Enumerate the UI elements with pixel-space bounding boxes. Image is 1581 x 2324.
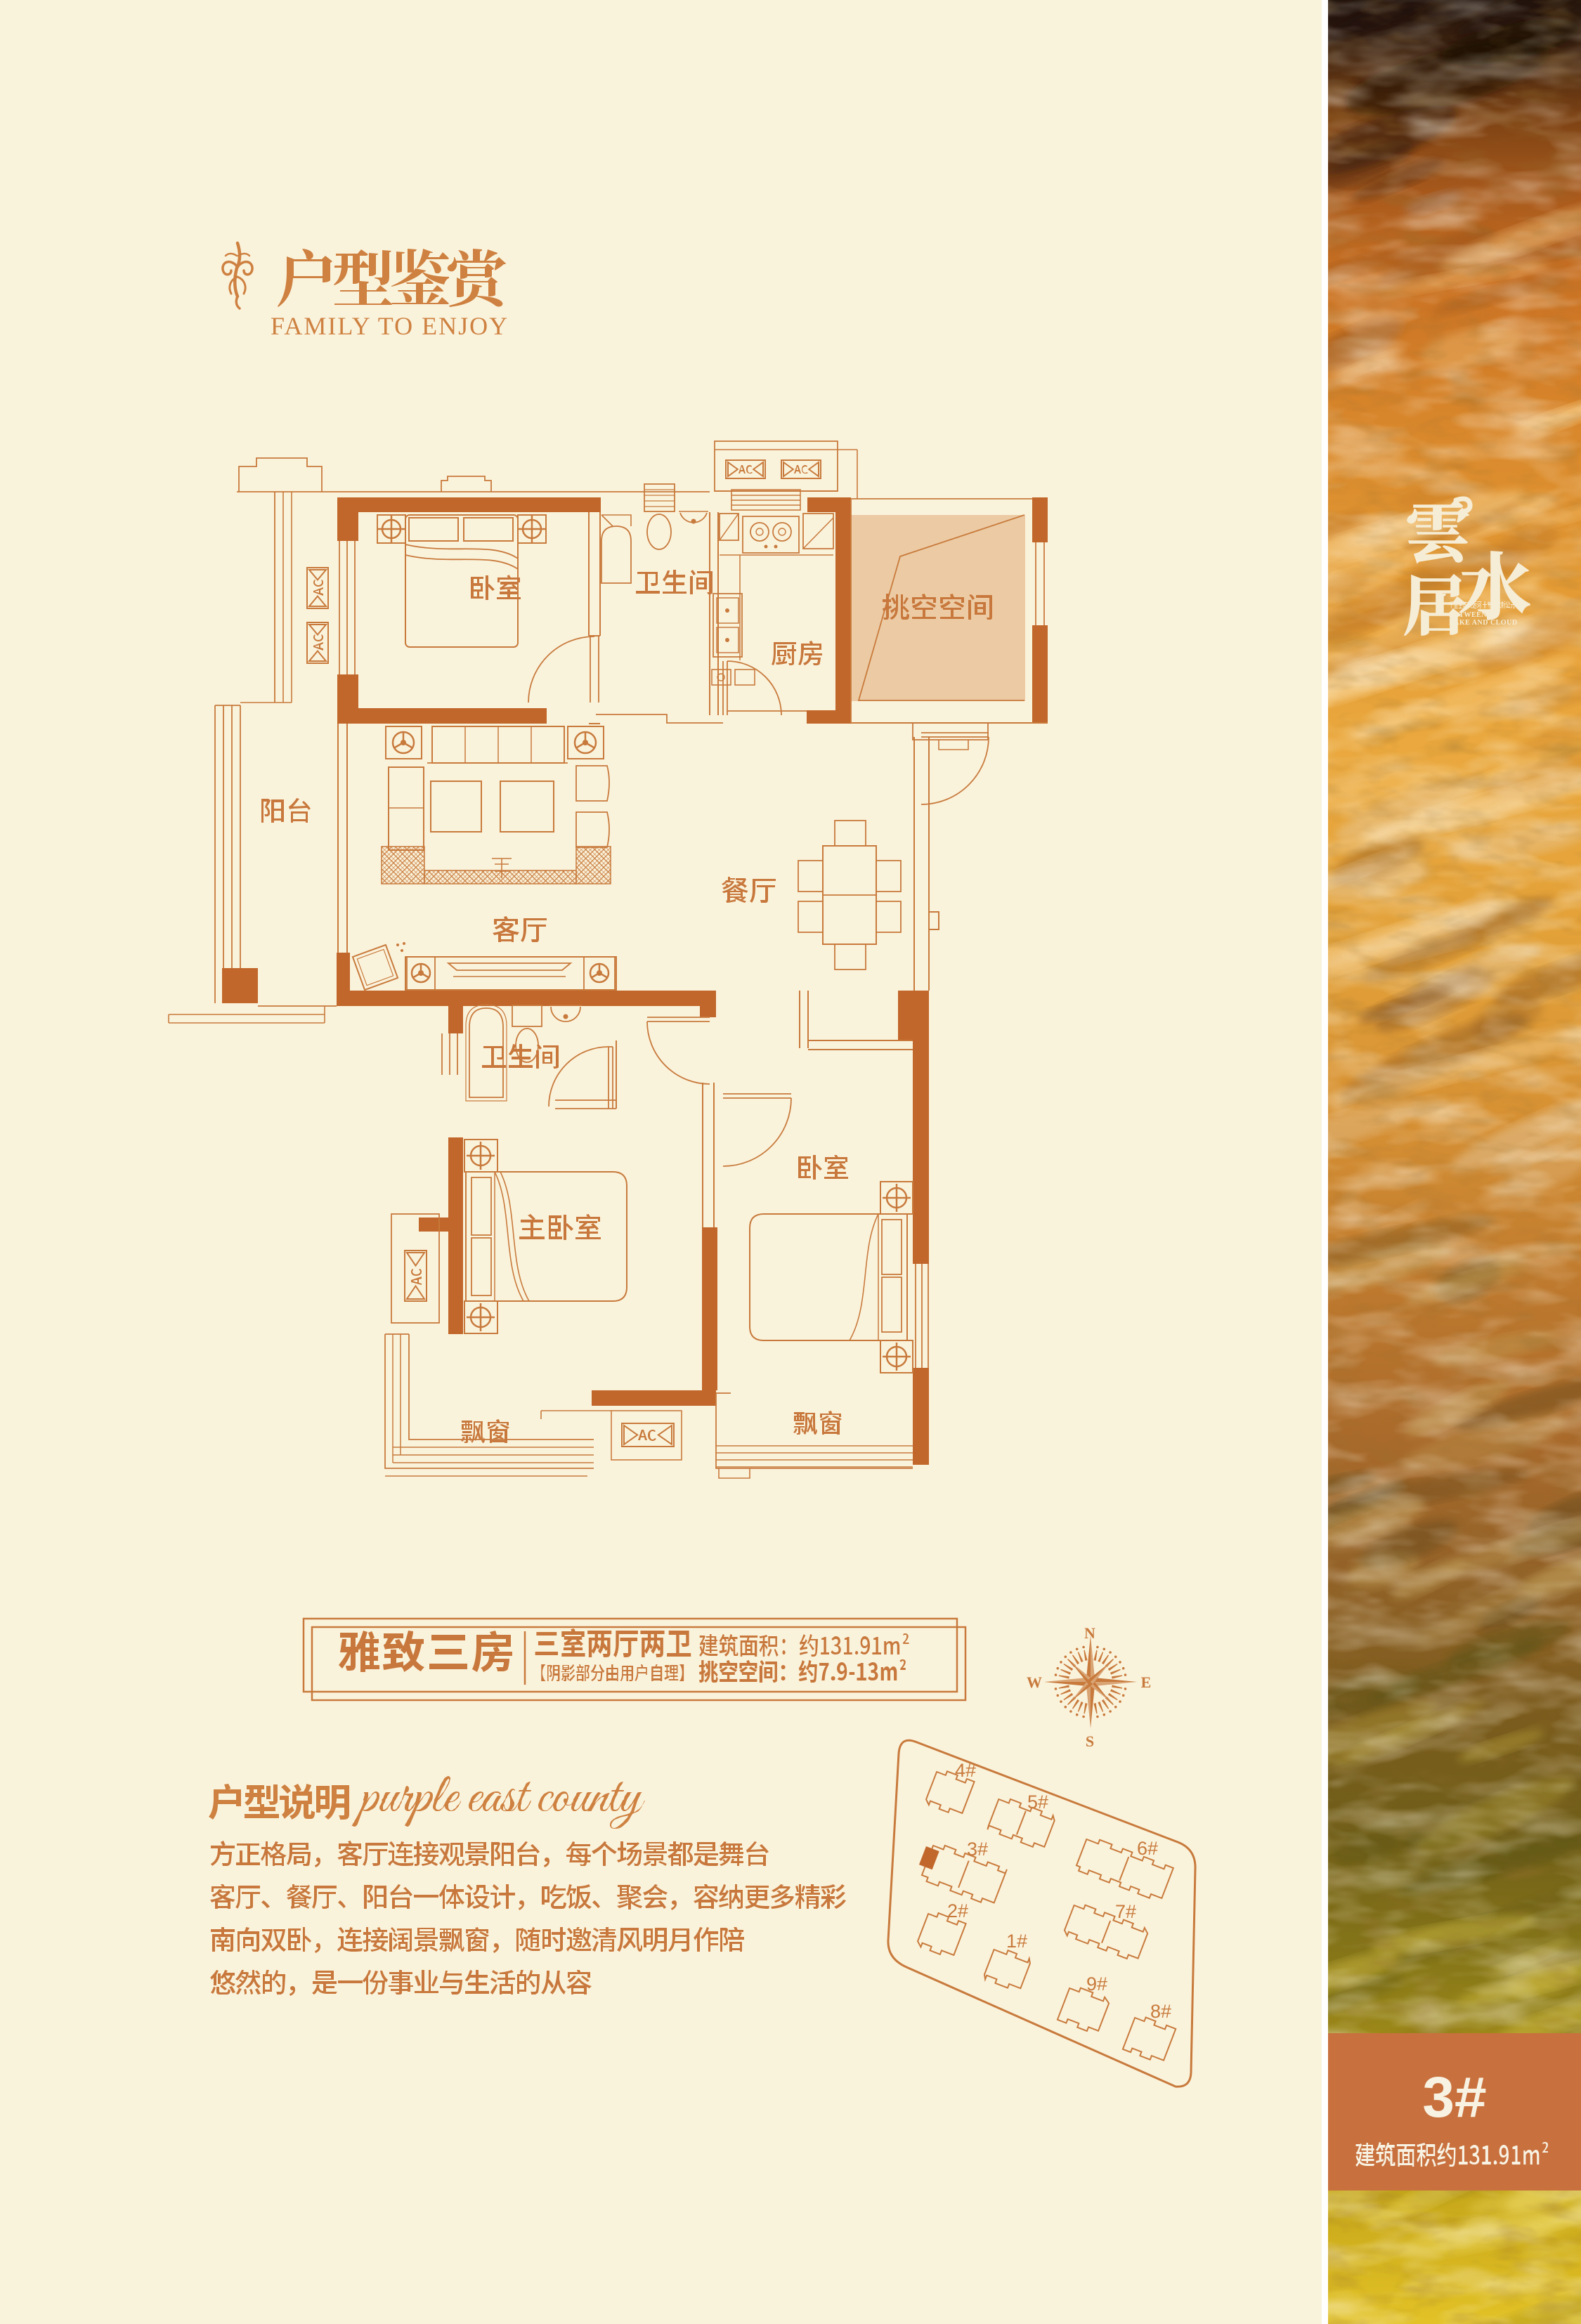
svg-text:9#: 9# <box>1086 1973 1107 1995</box>
svg-text:5#: 5# <box>1027 1791 1048 1813</box>
svg-text:S: S <box>1086 1732 1094 1750</box>
svg-text:BETWEEN OF: BETWEEN OF <box>1449 611 1499 619</box>
svg-text:8#: 8# <box>1150 2001 1171 2022</box>
svg-text:6#: 6# <box>1137 1838 1158 1859</box>
svg-text:2#: 2# <box>947 1900 968 1921</box>
svg-text:3#: 3# <box>967 1839 988 1860</box>
svg-text:3#: 3# <box>1422 2065 1486 2129</box>
svg-text:4#: 4# <box>955 1760 976 1781</box>
svg-text:1#: 1# <box>1006 1931 1027 1952</box>
svg-text:7#: 7# <box>1115 1901 1136 1922</box>
svg-text:E: E <box>1141 1673 1152 1691</box>
svg-text:W: W <box>1027 1673 1042 1691</box>
svg-text:LAKE AND CLOUD: LAKE AND CLOUD <box>1449 619 1518 627</box>
svg-text:FAMILY TO ENJOY: FAMILY TO ENJOY <box>271 312 509 340</box>
svg-text:N: N <box>1084 1624 1095 1642</box>
